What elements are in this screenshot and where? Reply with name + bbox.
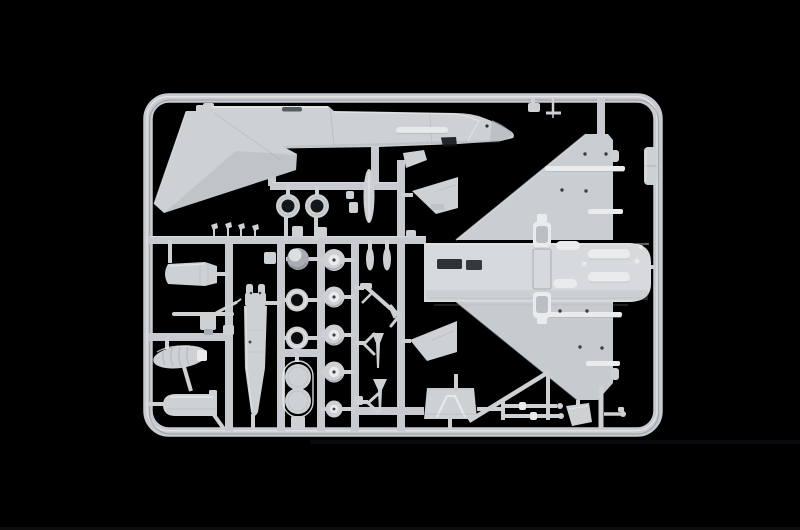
ring-hole — [291, 332, 303, 344]
ring-hole — [291, 294, 303, 306]
door-recess — [431, 204, 444, 210]
stub-block — [528, 103, 540, 112]
seat-dot — [250, 292, 253, 295]
hole-dot — [578, 345, 581, 348]
engine-nozzle — [165, 262, 217, 286]
wheel — [323, 249, 345, 271]
engine-ring-hole — [282, 200, 295, 213]
ecm-pod — [644, 147, 657, 185]
ramp-panel — [424, 388, 477, 419]
flask-recess — [536, 226, 548, 243]
dorsal-fairing — [396, 127, 448, 133]
fence — [588, 209, 623, 214]
detail-dot — [639, 245, 643, 249]
engine-ring-hole — [311, 200, 324, 213]
small-fitting — [349, 202, 358, 213]
tab — [264, 252, 276, 264]
pod-bump — [588, 272, 630, 282]
rod-knob — [557, 403, 563, 409]
spine-recess — [282, 107, 302, 112]
disc — [285, 388, 311, 414]
wheel — [324, 325, 345, 346]
intake-slot — [437, 259, 462, 269]
fence — [545, 166, 625, 171]
detail-dot — [635, 259, 640, 264]
hole-dot — [558, 309, 561, 312]
tank-fin-tab — [209, 390, 217, 396]
arm-block — [200, 315, 216, 330]
seat-dot — [259, 292, 262, 295]
screen-hub — [197, 350, 207, 361]
wheel-small — [326, 401, 343, 418]
disc-frame-tab — [291, 416, 305, 429]
rod-knob — [558, 413, 564, 419]
hole-dot — [584, 189, 587, 192]
flask-neck-lower — [537, 316, 547, 324]
hole-dot — [560, 188, 563, 191]
blade-small — [383, 248, 391, 271]
elevon-actuator — [611, 368, 619, 380]
tab — [223, 325, 234, 335]
pylon-dot — [249, 341, 252, 344]
small-fitting — [346, 191, 354, 199]
flask-recess — [536, 296, 548, 313]
rod-fitting — [618, 407, 624, 412]
blade-small — [366, 248, 374, 271]
fence — [586, 361, 620, 366]
intake-recess — [441, 137, 457, 147]
pod-bump — [588, 249, 630, 259]
gun-port — [485, 124, 488, 127]
rod-collar — [519, 402, 526, 410]
tab — [316, 227, 327, 238]
wheel — [324, 362, 345, 383]
intake-slot — [466, 260, 482, 270]
arm-foot — [204, 329, 213, 335]
elevon-actuator — [611, 150, 619, 162]
pod-bump — [556, 241, 580, 250]
hole-dot — [585, 309, 588, 312]
tab — [406, 230, 416, 238]
rod-collar — [530, 412, 537, 420]
seat-head — [245, 293, 266, 306]
hole-dot — [604, 152, 607, 155]
photo-edge-glow — [310, 440, 800, 444]
wheel — [324, 287, 345, 308]
hole-dot — [600, 346, 603, 349]
hole-dot — [583, 152, 586, 155]
sphere-dome — [287, 248, 309, 270]
fin-tip-step — [196, 105, 211, 113]
tab — [354, 396, 363, 405]
sprue-photo — [0, 0, 800, 530]
detail-dot — [582, 262, 587, 267]
pod-bump — [553, 279, 577, 288]
fence — [541, 312, 622, 317]
disc — [285, 364, 311, 390]
tab — [292, 226, 303, 237]
sphere-highlight — [289, 249, 302, 262]
